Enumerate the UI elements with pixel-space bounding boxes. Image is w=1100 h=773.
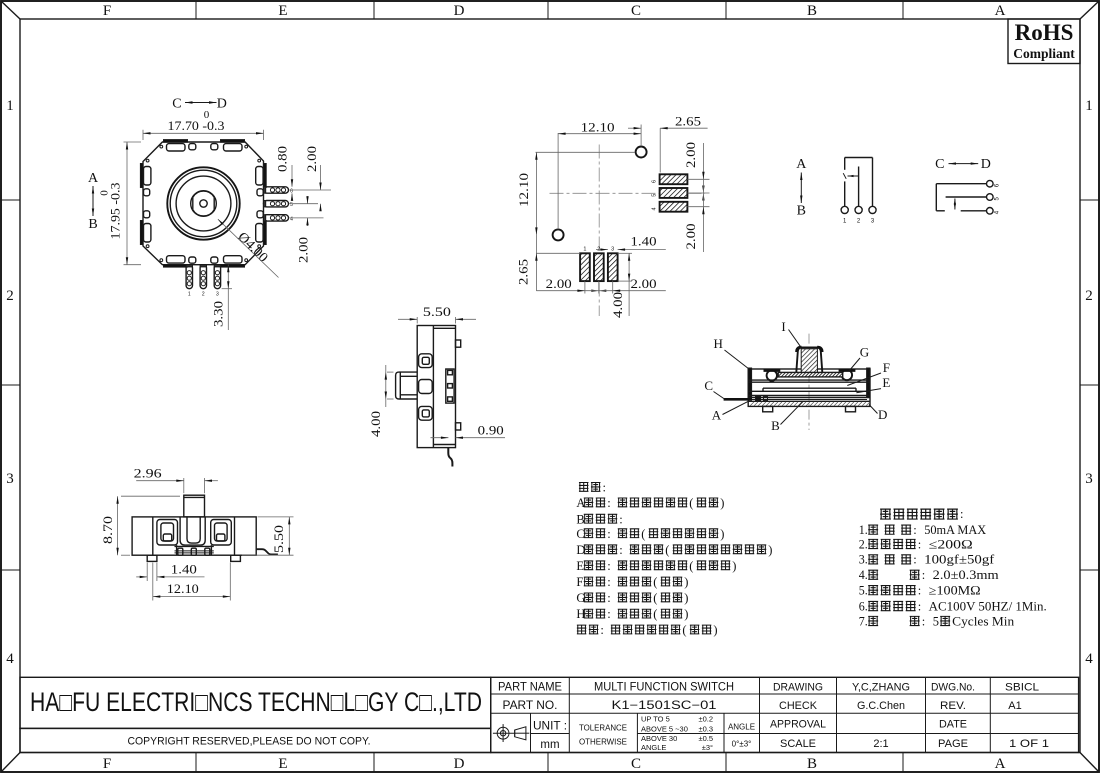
svg-text::: : — [607, 591, 610, 605]
svg-text:8.70: 8.70 — [100, 516, 115, 544]
svg-text:DWG.No.: DWG.No. — [931, 681, 975, 693]
svg-text:C: C — [631, 3, 641, 19]
svg-text:A: A — [995, 756, 1006, 772]
svg-text:Cycles Min: Cycles Min — [952, 614, 1015, 628]
svg-text:F: F — [883, 360, 890, 375]
svg-text:±0.2: ±0.2 — [698, 715, 713, 724]
svg-text:≥100MΩ: ≥100MΩ — [929, 584, 981, 598]
svg-text:1.40: 1.40 — [171, 562, 197, 577]
svg-text:17.95 -0.3: 17.95 -0.3 — [108, 183, 123, 240]
svg-text::: : — [607, 527, 610, 541]
svg-text:PART NO.: PART NO. — [503, 700, 558, 712]
svg-text:): ) — [713, 623, 717, 637]
svg-text:D: D — [981, 157, 991, 172]
svg-text:2.00: 2.00 — [631, 276, 657, 291]
svg-text:ANGLE: ANGLE — [641, 743, 666, 752]
svg-text::: : — [603, 481, 606, 495]
svg-text:(: ( — [653, 591, 657, 605]
svg-text:2.00: 2.00 — [546, 276, 572, 291]
svg-text::: : — [960, 507, 963, 521]
svg-text:AC100V 50HZ/ 1Min.: AC100V 50HZ/ 1Min. — [929, 599, 1047, 613]
svg-text:B: B — [807, 756, 817, 772]
svg-text:): ) — [684, 575, 688, 589]
svg-text:2.00: 2.00 — [297, 237, 311, 263]
svg-text:B: B — [797, 204, 806, 219]
svg-text:(: ( — [682, 623, 686, 637]
svg-text:UP TO 5: UP TO 5 — [641, 715, 670, 724]
svg-text:F: F — [576, 575, 583, 589]
svg-text:Compliant: Compliant — [1013, 46, 1075, 61]
svg-text:(: ( — [689, 559, 693, 573]
svg-text:H: H — [714, 336, 723, 351]
svg-text:A1: A1 — [1008, 700, 1021, 712]
svg-text:F: F — [103, 756, 111, 772]
svg-text:A: A — [995, 3, 1006, 19]
svg-text:1 OF 1: 1 OF 1 — [1009, 738, 1049, 750]
svg-text:A: A — [712, 408, 722, 423]
svg-text:3.30: 3.30 — [212, 301, 226, 327]
svg-text:PART NAME: PART NAME — [498, 681, 562, 693]
svg-text:5.50: 5.50 — [271, 525, 286, 553]
svg-text:G.C.Chen: G.C.Chen — [857, 700, 905, 712]
svg-text:1.: 1. — [859, 523, 868, 537]
svg-text:ABOVE 5 ~30: ABOVE 5 ~30 — [641, 725, 688, 734]
svg-text:±0.5: ±0.5 — [698, 734, 713, 743]
svg-text:5.50: 5.50 — [423, 304, 451, 319]
svg-text:4.00: 4.00 — [610, 292, 625, 318]
svg-text::: : — [913, 553, 916, 567]
svg-text:12.10: 12.10 — [167, 581, 199, 596]
svg-text:≤200Ω: ≤200Ω — [929, 537, 973, 551]
svg-text:B: B — [807, 3, 817, 19]
svg-text:SCALE: SCALE — [780, 738, 816, 750]
svg-text:3: 3 — [611, 247, 614, 253]
svg-text:2.00: 2.00 — [683, 142, 698, 168]
svg-text:2.00: 2.00 — [305, 146, 319, 172]
svg-text:E: E — [882, 375, 890, 390]
svg-text:DRAWING: DRAWING — [773, 681, 823, 693]
svg-text:2.65: 2.65 — [675, 114, 701, 129]
svg-text:12.10: 12.10 — [516, 173, 531, 207]
svg-text:5: 5 — [290, 202, 293, 208]
svg-text:1: 1 — [6, 98, 14, 114]
svg-text:100gf±50gf: 100gf±50gf — [924, 553, 995, 567]
svg-text:2.65: 2.65 — [516, 259, 531, 285]
svg-text:2:1: 2:1 — [873, 738, 888, 750]
svg-text:2.00: 2.00 — [683, 224, 698, 250]
svg-text:): ) — [684, 607, 688, 621]
svg-text:Y,C,ZHANG: Y,C,ZHANG — [852, 681, 910, 693]
svg-text:2: 2 — [1085, 288, 1093, 304]
svg-text:C: C — [576, 527, 584, 541]
svg-text:A: A — [796, 157, 807, 172]
svg-text:ABOVE 30: ABOVE 30 — [641, 734, 677, 743]
svg-text:4: 4 — [6, 651, 14, 667]
svg-text:): ) — [732, 559, 736, 573]
svg-text:4: 4 — [652, 207, 658, 210]
svg-text:D: D — [217, 97, 227, 112]
svg-text:6: 6 — [652, 180, 658, 183]
svg-text:(: ( — [653, 575, 657, 589]
svg-text:D: D — [878, 407, 887, 422]
svg-text:C: C — [935, 157, 944, 172]
svg-text::: : — [918, 584, 921, 598]
svg-text:E: E — [576, 559, 584, 573]
svg-text:OTHERWISE: OTHERWISE — [579, 738, 627, 747]
svg-text:0.80: 0.80 — [276, 146, 290, 172]
svg-text:(: ( — [689, 496, 693, 510]
svg-text:E: E — [278, 756, 287, 772]
svg-text:4.00: 4.00 — [369, 411, 383, 437]
svg-text:4: 4 — [290, 216, 293, 222]
svg-text:E: E — [278, 3, 287, 19]
svg-text:(: ( — [653, 607, 657, 621]
svg-text:2.: 2. — [859, 537, 868, 551]
svg-text:RoHS: RoHS — [1015, 20, 1074, 45]
svg-text:5: 5 — [933, 614, 939, 628]
svg-text::: : — [918, 599, 921, 613]
svg-text:ANGLE: ANGLE — [728, 723, 755, 732]
svg-text::: : — [600, 623, 603, 637]
svg-text:C: C — [704, 378, 713, 393]
svg-text::: : — [607, 575, 610, 589]
svg-text:): ) — [720, 527, 724, 541]
svg-text:C: C — [631, 756, 641, 772]
svg-text:HA□FU ELECTRI□NCS TECHN□L□GY C: HA□FU ELECTRI□NCS TECHN□L□GY C□.,LTD — [30, 687, 482, 717]
svg-text:7.: 7. — [859, 614, 868, 628]
svg-text:CHECK: CHECK — [779, 700, 818, 712]
svg-text:UNIT :: UNIT : — [533, 721, 567, 733]
svg-text:2.96: 2.96 — [134, 466, 163, 481]
svg-text::: : — [913, 523, 916, 537]
svg-text:B: B — [576, 512, 584, 526]
svg-text:): ) — [768, 543, 772, 557]
svg-text:I: I — [781, 319, 785, 334]
svg-text:2.0±0.3mm: 2.0±0.3mm — [933, 568, 999, 582]
svg-text::: : — [607, 607, 610, 621]
svg-text:D: D — [454, 756, 465, 772]
svg-text:B: B — [88, 217, 97, 232]
svg-text:1: 1 — [1085, 98, 1093, 114]
svg-text:): ) — [684, 591, 688, 605]
svg-text::: : — [918, 537, 921, 551]
svg-text:G: G — [860, 344, 869, 359]
svg-text:F: F — [103, 3, 111, 19]
svg-text:12.10: 12.10 — [581, 120, 615, 135]
svg-text:6.: 6. — [859, 599, 868, 613]
svg-text:17.70 -0.3: 17.70 -0.3 — [168, 118, 225, 133]
svg-text:3: 3 — [216, 292, 219, 298]
svg-text:(: ( — [665, 543, 669, 557]
svg-text:MULTI FUNCTION SWITCH: MULTI FUNCTION SWITCH — [594, 681, 734, 693]
svg-text:5.: 5. — [859, 584, 868, 598]
svg-text:(: ( — [641, 527, 645, 541]
svg-text:REV.: REV. — [940, 700, 966, 712]
svg-text:2: 2 — [202, 292, 205, 298]
svg-text:B: B — [771, 418, 780, 433]
svg-text:TOLERANCE: TOLERANCE — [579, 724, 627, 733]
svg-text:DATE: DATE — [939, 719, 967, 731]
svg-text:PAGE: PAGE — [938, 738, 968, 750]
svg-text::: : — [619, 543, 622, 557]
svg-text::: : — [619, 512, 622, 526]
svg-text:3.: 3. — [859, 553, 868, 567]
svg-text::: : — [607, 496, 610, 510]
svg-text:SBICL: SBICL — [1005, 681, 1039, 693]
svg-text::: : — [922, 614, 925, 628]
svg-text:4: 4 — [1085, 651, 1093, 667]
svg-text:1: 1 — [583, 247, 586, 253]
svg-text:2: 2 — [6, 288, 14, 304]
svg-text::: : — [607, 559, 610, 573]
svg-text:D: D — [454, 3, 465, 19]
svg-text:COPYRIGHT RESERVED,PLEASE DO: COPYRIGHT RESERVED,PLEASE DO NOT COPY. — [128, 736, 371, 748]
svg-text:5: 5 — [652, 194, 658, 197]
svg-text:K1−1501SC−01: K1−1501SC−01 — [612, 700, 717, 712]
svg-text:4.: 4. — [859, 568, 868, 582]
svg-text:mm: mm — [540, 739, 559, 751]
svg-text:C: C — [172, 97, 181, 112]
svg-text:3: 3 — [6, 471, 14, 487]
svg-text:3: 3 — [1085, 471, 1093, 487]
svg-text:±0.3: ±0.3 — [698, 725, 713, 734]
svg-text:±3°: ±3° — [702, 743, 713, 752]
svg-text:A: A — [88, 171, 99, 186]
svg-text:0.90: 0.90 — [478, 423, 504, 438]
svg-text:0°±3°: 0°±3° — [732, 740, 752, 749]
svg-text:1: 1 — [188, 292, 191, 298]
svg-text:): ) — [720, 496, 724, 510]
svg-text:50mA MAX: 50mA MAX — [924, 523, 986, 537]
svg-text::: : — [922, 568, 925, 582]
svg-text:1.40: 1.40 — [631, 234, 657, 249]
svg-text:APPROVAL: APPROVAL — [770, 719, 826, 731]
